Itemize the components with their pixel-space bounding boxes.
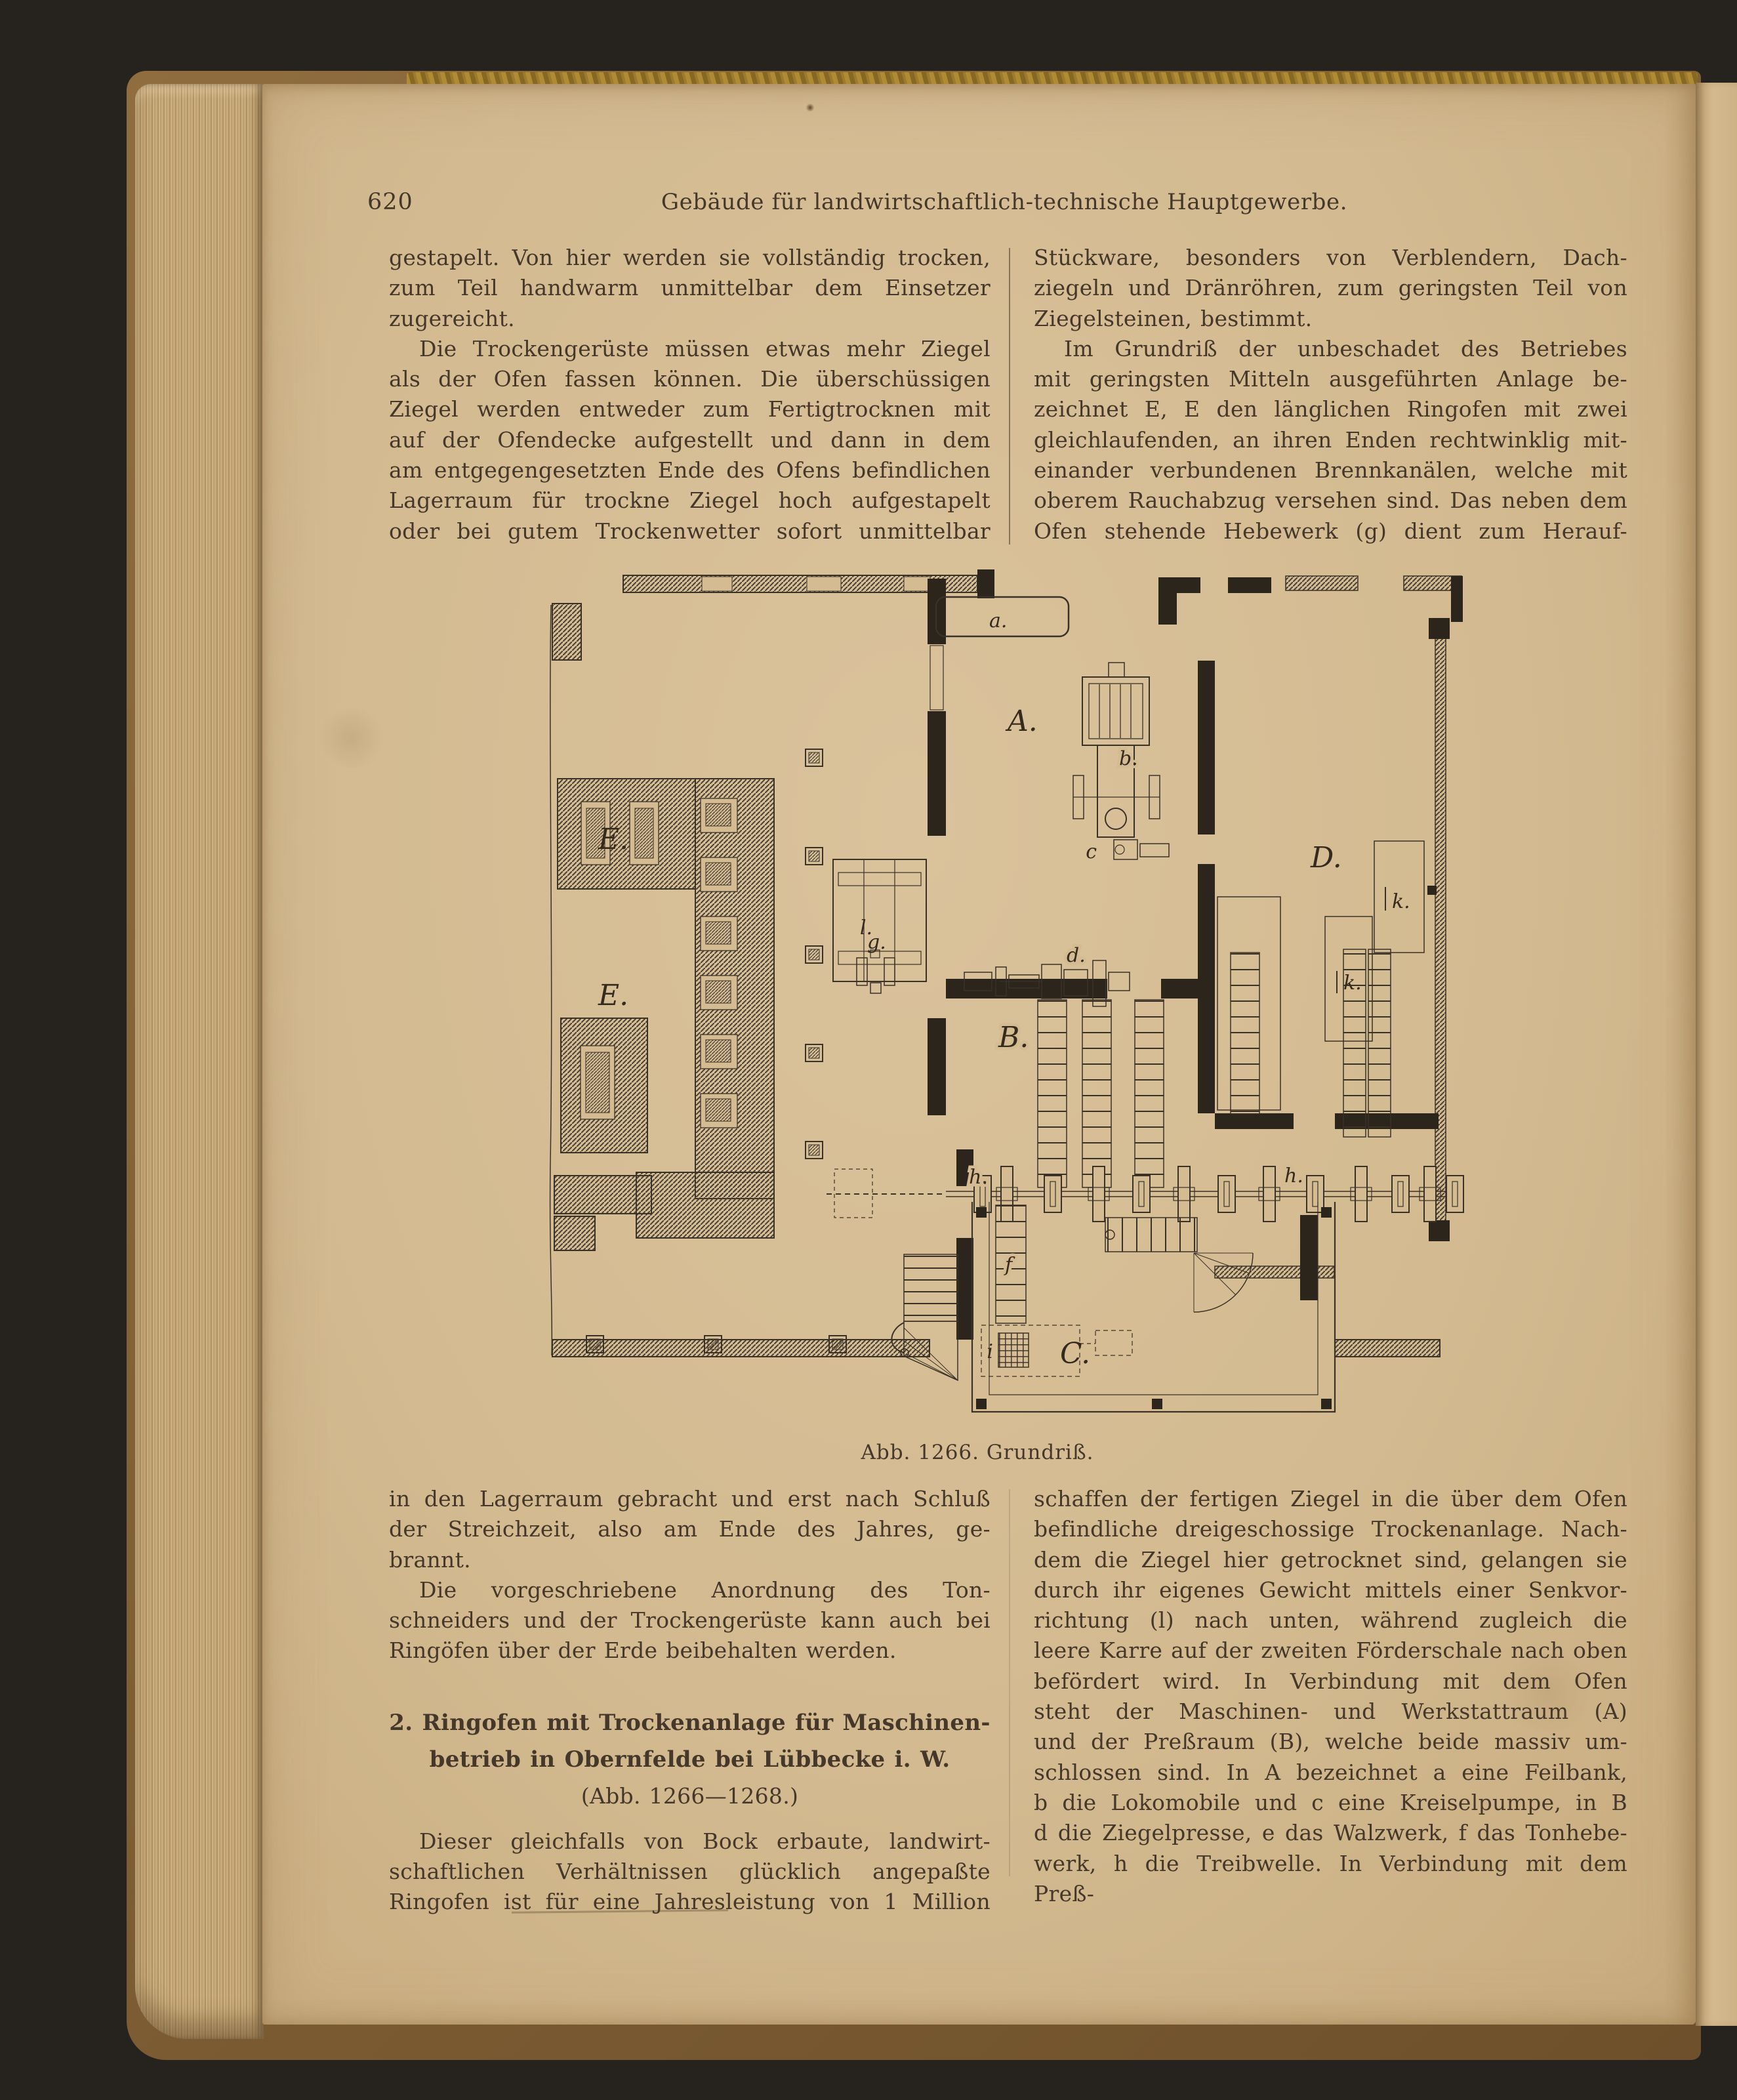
label-ziegelpresse: d. bbox=[1067, 944, 1086, 967]
staircase-left bbox=[891, 1254, 958, 1380]
ring-kiln-masonry bbox=[550, 604, 774, 1355]
column-bottom-right: schaffen der fertigen Ziegel in die über… bbox=[1034, 1484, 1627, 1909]
label-treibwelle: h. bbox=[1284, 1164, 1303, 1187]
paper-stain bbox=[315, 709, 387, 768]
scanned-book-photo: { "header": { "page_number": "620", "run… bbox=[0, 0, 1737, 2100]
label-senkvorrichtung: l. bbox=[860, 916, 872, 939]
text-line: 2. Ringofen mit Trockenanlage für Maschi… bbox=[389, 1704, 991, 1741]
text-line: betrieb in Obernfelde bei Lübbecke i. W. bbox=[389, 1741, 991, 1778]
text-line: am entgegengesetzten Ende des Ofens befi… bbox=[389, 455, 991, 485]
text-line: in den Lagerraum gebracht und erst nach … bbox=[389, 1484, 991, 1514]
text-line: mit geringsten Mitteln ausgeführten Anla… bbox=[1034, 364, 1627, 394]
label-room-a: A. bbox=[1005, 705, 1038, 738]
text-line: ziegeln und Dränröhren, zum geringsten T… bbox=[1034, 273, 1627, 303]
text-line: der Streichzeit, also am Ende des Jahres… bbox=[389, 1514, 991, 1544]
paragraph: Dieser gleichfalls von Bock erbaute, lan… bbox=[389, 1826, 991, 1918]
senkvorrichtung-rack bbox=[833, 859, 926, 981]
next-page-edge bbox=[1696, 83, 1737, 2026]
column-rule bbox=[1009, 1489, 1010, 1876]
text-line: Lagerraum für trockne Ziegel hoch aufges… bbox=[389, 485, 991, 516]
page-edge-stack bbox=[135, 84, 264, 2039]
label-kreiselpumpe: c bbox=[1086, 840, 1097, 863]
label-room-c: C. bbox=[1060, 1337, 1090, 1370]
foxing-spot bbox=[806, 104, 815, 112]
text-line: Ziegel werden entweder zum Fertigtrockne… bbox=[389, 394, 991, 424]
text-line: gleichlaufenden, an ihren Enden rechtwin… bbox=[1034, 425, 1627, 455]
text-line: Dieser gleichfalls von Bock erbaute, lan… bbox=[389, 1826, 991, 1857]
text-line: befindliche dreigeschossige Trockenanlag… bbox=[1034, 1514, 1627, 1544]
text-line: zum Teil handwarm unmittelbar dem Einset… bbox=[389, 273, 991, 303]
label-feilbank: a. bbox=[989, 609, 1007, 632]
text-line: durch ihr eigenes Gewicht mittels einer … bbox=[1034, 1575, 1627, 1605]
label-karre: i bbox=[987, 1340, 993, 1363]
text-line: Ofen stehende Hebewerk (g) dient zum Her… bbox=[1034, 516, 1627, 546]
text-line: auf der Ofendecke aufgestellt und dann i… bbox=[389, 425, 991, 455]
text-line: (Abb. 1266—1268.) bbox=[389, 1778, 991, 1815]
running-header: Gebäude für landwirtschaftlich-technisch… bbox=[590, 189, 1418, 215]
text-line: brannt. bbox=[389, 1545, 991, 1575]
karre-grid bbox=[998, 1333, 1029, 1367]
figure-caption: Abb. 1266. Grundriß. bbox=[748, 1441, 1207, 1464]
drying-tracks bbox=[1038, 841, 1437, 1187]
text-line: Die vorgeschriebene Anordnung des Ton- bbox=[389, 1575, 991, 1605]
text-line: b die Lokomobile und c eine Kreiselpumpe… bbox=[1034, 1788, 1627, 1818]
label-kiln-e: E. bbox=[598, 979, 628, 1012]
label-room-b: B. bbox=[998, 1021, 1029, 1054]
label-lokomobile: b. bbox=[1119, 747, 1138, 770]
text-line: Die Trockengerüste müssen etwas mehr Zie… bbox=[389, 334, 991, 364]
text-line: und der Preßraum (B), welche beide massi… bbox=[1034, 1727, 1627, 1757]
hebewerk-parts bbox=[857, 950, 895, 993]
text-line: zugereicht. bbox=[389, 304, 991, 334]
text-line: schlossen sind. In A bezeichnet a eine F… bbox=[1034, 1758, 1627, 1788]
paragraph: in den Lagerraum gebracht und erst nach … bbox=[389, 1484, 991, 1666]
text-line: Stückware, besonders von Verblendern, Da… bbox=[1034, 243, 1627, 273]
floorplan-figure: A. B. C. D. E. E. a. b. c d. g. h. h. f … bbox=[544, 559, 1469, 1431]
text-line: richtung (l) nach unten, während zugleic… bbox=[1034, 1605, 1627, 1636]
text-line: Ringöfen über der Erde beibehalten werde… bbox=[389, 1636, 991, 1666]
text-line: zeichnet E, E den länglichen Ringofen mi… bbox=[1034, 394, 1627, 424]
text-line: oberem Rauchabzug versehen sind. Das neb… bbox=[1034, 485, 1627, 516]
column-rule bbox=[1009, 248, 1010, 545]
text-line: oder bei gutem Trockenwetter sofort unmi… bbox=[389, 516, 991, 546]
section-heading: 2. Ringofen mit Trockenanlage für Maschi… bbox=[389, 1704, 991, 1815]
column-top-left: gestapelt. Von hier werden sie vollständ… bbox=[389, 243, 991, 546]
page-number: 620 bbox=[367, 189, 413, 215]
text-line: gestapelt. Von hier werden sie vollständ… bbox=[389, 243, 991, 273]
text-line: schneiders und der Trockengerüste kann a… bbox=[389, 1605, 991, 1636]
text-line: Im Grundriß der unbeschadet des Betriebe… bbox=[1034, 334, 1627, 364]
text-line: d die Ziegelpresse, e das Walzwerk, f da… bbox=[1034, 1818, 1627, 1848]
kreiselpumpe-machine bbox=[1114, 840, 1169, 859]
label-treibwelle: h. bbox=[969, 1166, 988, 1189]
text-line: leere Karre auf der zweiten Förderschale… bbox=[1034, 1636, 1627, 1666]
text-line: als der Ofen fassen können. Die überschü… bbox=[389, 364, 991, 394]
label-room-d: D. bbox=[1310, 841, 1342, 875]
text-line: schaftlichen Verhältnissen glücklich ang… bbox=[389, 1857, 991, 1887]
label-k: k. bbox=[1392, 890, 1410, 913]
text-line: dem die Ziegel hier getrocknet sind, gel… bbox=[1034, 1545, 1627, 1575]
staircase-spiral bbox=[1105, 1218, 1253, 1312]
text-line: werk, h die Treibwelle. In Verbindung mi… bbox=[1034, 1849, 1627, 1910]
text-line: schaffen der fertigen Ziegel in die über… bbox=[1034, 1484, 1627, 1514]
text-line: einander verbundenen Brennkanälen, welch… bbox=[1034, 455, 1627, 485]
text-line: steht der Maschinen- und Werkstattraum (… bbox=[1034, 1697, 1627, 1727]
text-line: Ringofen ist für eine Jahresleistung von… bbox=[389, 1887, 991, 1917]
column-bottom-left: in den Lagerraum gebracht und erst nach … bbox=[389, 1484, 991, 1918]
column-top-right: Stückware, besonders von Verblendern, Da… bbox=[1034, 243, 1627, 546]
label-kiln-e: E. bbox=[598, 823, 628, 856]
text-line: befördert wird. In Verbindung mit dem Of… bbox=[1034, 1666, 1627, 1697]
text-line: Ziegelsteinen, bestimmt. bbox=[1034, 304, 1627, 334]
lokomobile-machine bbox=[1073, 663, 1160, 837]
label-k: k. bbox=[1343, 972, 1362, 995]
